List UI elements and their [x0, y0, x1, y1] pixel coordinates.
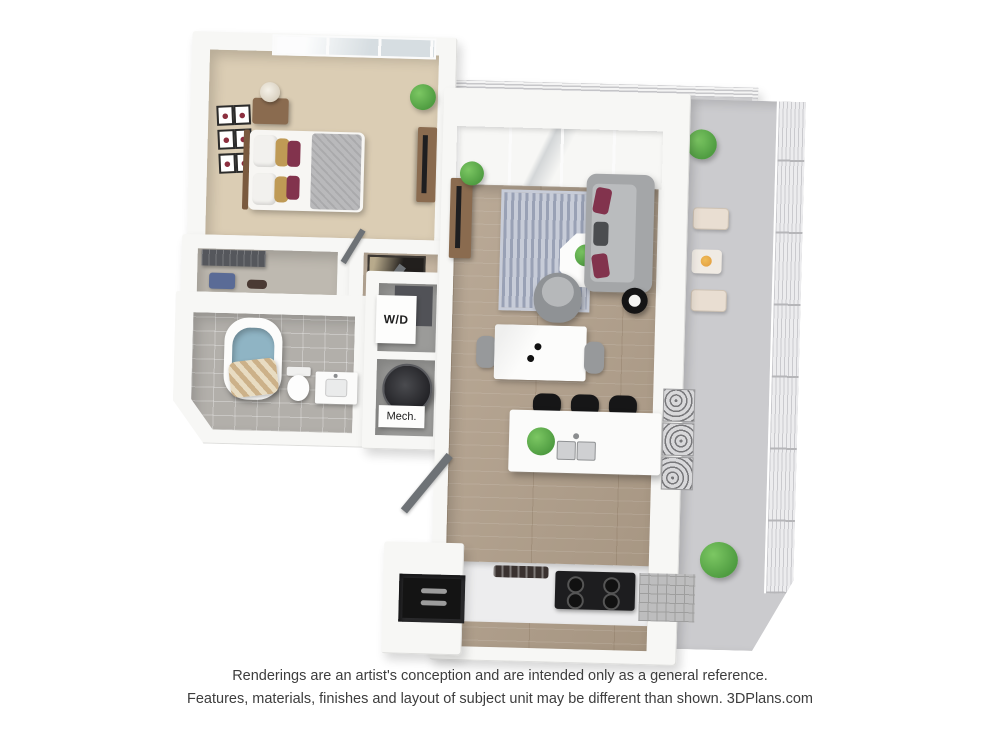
bed-blanket [310, 133, 362, 210]
accent-chair-cushion [541, 276, 574, 307]
bed-pillow-accent [286, 176, 300, 200]
floor-lamp-shade [629, 295, 641, 307]
island-faucet [573, 433, 579, 439]
bedroom-window [272, 34, 436, 59]
picture-frame [218, 153, 236, 174]
outdoor-chair [693, 207, 730, 230]
disclaimer-line2: Features, materials, finishes and layout… [0, 688, 1000, 711]
sofa-pillow-accent [591, 253, 610, 279]
mech-label: Mech. [386, 410, 416, 423]
disclaimer-line1: Renderings are an artist's conception an… [0, 665, 1000, 688]
sofa [584, 173, 655, 293]
washer-dryer-label-box: W/D [375, 295, 416, 344]
tiled-counter [638, 573, 695, 622]
wavy-panel [662, 423, 695, 457]
shoes [247, 280, 267, 290]
bed [248, 130, 365, 213]
bathroom-vanity [315, 371, 358, 404]
wavy-panel [661, 456, 694, 490]
picture-frame [216, 105, 234, 126]
bed-pillow-accent [287, 141, 301, 167]
wavy-art-panels [661, 389, 694, 490]
cooktop [555, 571, 636, 611]
toilet-bowl [287, 375, 310, 402]
refrigerator [402, 578, 461, 620]
dining-table [494, 324, 587, 381]
bed-pillow-white [252, 173, 277, 206]
bathtub [223, 317, 283, 400]
dining-chair [584, 341, 605, 374]
wavy-panel [663, 389, 696, 423]
outdoor-chair [690, 289, 727, 312]
disclaimer: Renderings are an artist's conception an… [0, 665, 1000, 711]
bed-headboard [242, 129, 250, 209]
fridge-handle [421, 588, 447, 594]
island-sink [576, 441, 595, 460]
accent-chair [533, 272, 582, 323]
toilet [285, 367, 312, 404]
burner [603, 577, 620, 594]
washer-dryer-label: W/D [383, 312, 408, 327]
vanity-sink [325, 379, 347, 398]
mech-label-box: Mech. [378, 405, 425, 428]
fridge-handle [421, 600, 447, 606]
vanity-faucet [334, 374, 338, 378]
counter-bottles [493, 565, 548, 578]
burner [567, 592, 584, 609]
laundry-basket [209, 273, 235, 290]
shower-curtain [228, 357, 280, 398]
picture-frame [217, 129, 235, 150]
bed-pillow-white [253, 135, 278, 168]
floorplan-rendering: W/D Mech. [141, 15, 857, 663]
burner [567, 576, 584, 593]
hanging-clothes [201, 249, 265, 267]
island-sink [556, 441, 575, 460]
burner [603, 593, 620, 610]
sofa-pillow-dark [593, 222, 609, 246]
picture-frame [233, 104, 251, 125]
